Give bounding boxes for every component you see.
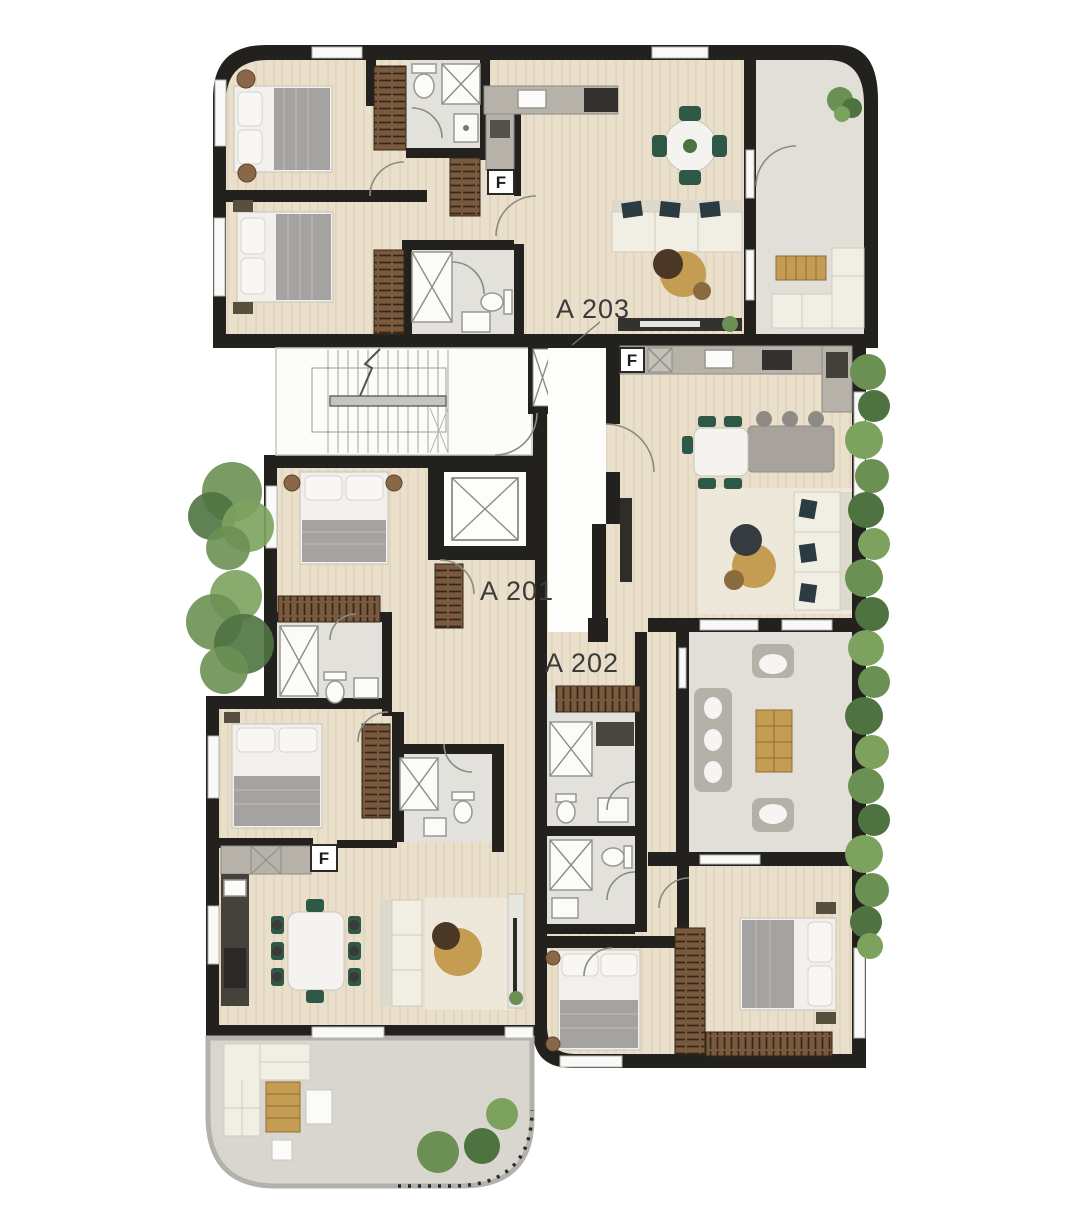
outdoor-chair bbox=[306, 1090, 332, 1124]
wall bbox=[547, 936, 677, 948]
hedge-shrub bbox=[855, 873, 889, 907]
wall bbox=[337, 840, 397, 848]
bar-stool bbox=[808, 411, 824, 427]
pillow bbox=[562, 954, 598, 976]
tv bbox=[640, 321, 700, 327]
a201-bedroom2-bed bbox=[224, 712, 322, 828]
pillow bbox=[237, 728, 275, 752]
dining-chair bbox=[679, 170, 701, 185]
window bbox=[679, 648, 686, 688]
nightstand bbox=[284, 475, 300, 491]
nightstand bbox=[233, 200, 253, 212]
chair-seat bbox=[272, 920, 282, 930]
fridge-marker-a203: F bbox=[496, 173, 506, 192]
kitchen-island bbox=[748, 426, 834, 472]
wardrobe bbox=[362, 724, 390, 818]
hedge-shrub bbox=[848, 492, 884, 528]
window bbox=[214, 218, 225, 296]
sofa bbox=[392, 900, 422, 1006]
wardrobe bbox=[450, 158, 480, 216]
tv-console bbox=[620, 498, 632, 582]
sink bbox=[552, 898, 578, 918]
wall bbox=[514, 110, 521, 196]
hedge-shrub bbox=[848, 630, 884, 666]
void-wall-lower bbox=[592, 524, 606, 634]
tv bbox=[513, 918, 517, 992]
sofa-pillow bbox=[704, 697, 722, 719]
void-wall-nub bbox=[588, 618, 608, 642]
pillow bbox=[305, 476, 342, 500]
wall bbox=[492, 744, 504, 852]
outdoor-bench bbox=[776, 256, 826, 280]
cooktop bbox=[762, 350, 792, 370]
pillow bbox=[601, 954, 637, 976]
chair-seat bbox=[349, 946, 359, 956]
a203-bedroom1-bed bbox=[234, 70, 332, 182]
sliding-door bbox=[782, 620, 832, 630]
void-wall-mid bbox=[606, 472, 620, 524]
toilet-tank bbox=[504, 290, 512, 314]
hedge-shrub bbox=[845, 697, 883, 735]
dining-chair bbox=[724, 416, 742, 427]
hedge-shrub bbox=[848, 768, 884, 804]
pillow bbox=[346, 476, 383, 500]
bath-counter bbox=[596, 722, 634, 746]
wardrobe bbox=[706, 1032, 832, 1056]
hedge-shrub bbox=[858, 390, 890, 422]
sliding-door bbox=[700, 855, 760, 864]
dining-chair bbox=[682, 436, 693, 454]
hedge-shrub bbox=[858, 804, 890, 836]
apartment-a201-label: A 201 bbox=[480, 576, 554, 606]
nightstand bbox=[233, 302, 253, 314]
toilet bbox=[557, 801, 575, 823]
sofa-pillow bbox=[799, 543, 817, 563]
floor-plan-svg: F F F bbox=[0, 0, 1077, 1229]
armchair-cushion bbox=[759, 804, 787, 824]
hedge-shrub bbox=[845, 421, 883, 459]
hedge-shrub bbox=[845, 559, 883, 597]
nightstand bbox=[546, 1037, 560, 1051]
window bbox=[208, 736, 219, 798]
pillow bbox=[238, 92, 262, 126]
nightstand bbox=[238, 164, 256, 182]
stair-handrail bbox=[330, 396, 446, 406]
floor-plan-page: F F F bbox=[0, 0, 1077, 1229]
blanket bbox=[276, 214, 331, 300]
nightstand bbox=[816, 1012, 836, 1024]
sliding-door bbox=[700, 620, 758, 630]
blanket bbox=[742, 920, 794, 1008]
sofa-pillow bbox=[704, 761, 722, 783]
coffee-table bbox=[730, 524, 762, 556]
window bbox=[746, 250, 754, 300]
toilet bbox=[481, 293, 503, 311]
coffee-table bbox=[693, 282, 711, 300]
fridge-marker-a202: F bbox=[627, 351, 637, 370]
dining-chair bbox=[698, 416, 716, 427]
sink bbox=[354, 678, 378, 698]
tree-icon bbox=[188, 462, 274, 570]
sofa-pillow bbox=[799, 583, 817, 603]
outdoor-sofa bbox=[832, 248, 864, 328]
blanket bbox=[560, 1000, 638, 1048]
armchair-cushion bbox=[759, 654, 787, 674]
hedge-shrub bbox=[850, 906, 882, 938]
hedge-shrub bbox=[857, 933, 883, 959]
hedge-shrub bbox=[858, 666, 890, 698]
sink bbox=[424, 818, 446, 836]
wall bbox=[264, 698, 384, 709]
toilet-tank bbox=[324, 672, 346, 680]
wall bbox=[428, 468, 440, 560]
wall bbox=[406, 148, 490, 158]
plant-icon bbox=[722, 316, 738, 332]
wardrobe bbox=[374, 250, 404, 334]
a202-bedroom2-bed bbox=[740, 902, 836, 1024]
window bbox=[652, 47, 708, 58]
nightstand bbox=[816, 902, 836, 914]
window bbox=[854, 948, 865, 1038]
bush-icon bbox=[464, 1128, 500, 1164]
pillow bbox=[238, 130, 262, 164]
dining-chair bbox=[712, 135, 727, 157]
pillow bbox=[241, 218, 265, 254]
a202-entry-opening bbox=[606, 424, 620, 472]
toilet bbox=[414, 74, 434, 98]
dining-chair bbox=[724, 478, 742, 489]
toilet-tank bbox=[452, 792, 474, 800]
a201-bedroom1-bed bbox=[284, 472, 402, 564]
fridge-marker-a201: F bbox=[319, 849, 329, 868]
wardrobe bbox=[374, 66, 406, 150]
sofa-pillow bbox=[699, 201, 720, 218]
dining-chair bbox=[698, 478, 716, 489]
hedge-shrub bbox=[858, 528, 890, 560]
sink bbox=[598, 798, 628, 822]
wardrobe bbox=[278, 596, 380, 622]
sofa-pillow bbox=[621, 201, 643, 219]
bar-stool bbox=[782, 411, 798, 427]
hedge-shrub bbox=[855, 735, 889, 769]
window bbox=[312, 1027, 384, 1038]
nightstand bbox=[237, 70, 255, 88]
hedge-shrub bbox=[845, 835, 883, 873]
hedge-shrub bbox=[850, 354, 886, 390]
pillow bbox=[279, 728, 317, 752]
wardrobe bbox=[675, 928, 705, 1054]
bush-icon bbox=[417, 1131, 459, 1173]
bar-stool bbox=[756, 411, 772, 427]
dining-chair bbox=[652, 135, 667, 157]
toilet-tank bbox=[412, 64, 436, 73]
dining-chair bbox=[306, 899, 324, 912]
chair-seat bbox=[349, 920, 359, 930]
sofa-pillow bbox=[704, 729, 722, 751]
chair-seat bbox=[272, 946, 282, 956]
dining-table bbox=[288, 912, 344, 990]
wall bbox=[635, 632, 647, 932]
window bbox=[746, 150, 754, 198]
plant-icon bbox=[509, 991, 523, 1005]
coffee-table bbox=[653, 249, 683, 279]
right-hedge bbox=[845, 354, 890, 959]
toilet bbox=[454, 801, 472, 823]
dining-chair bbox=[306, 990, 324, 1003]
sofa-pillow bbox=[799, 499, 818, 520]
bush-icon bbox=[486, 1098, 518, 1130]
wall bbox=[402, 240, 514, 250]
kitchen-sink bbox=[518, 90, 546, 108]
sofa bbox=[612, 212, 742, 252]
wall bbox=[547, 924, 635, 934]
left-trees bbox=[186, 462, 274, 694]
terrace-door-opening bbox=[505, 1027, 533, 1038]
window bbox=[215, 80, 226, 146]
apartment-a202-label: A 202 bbox=[545, 648, 619, 678]
coffee-table bbox=[724, 570, 744, 590]
a203-bedroom2-bed bbox=[233, 200, 333, 314]
sink-drain bbox=[463, 125, 469, 131]
dining-table bbox=[694, 428, 748, 476]
blanket bbox=[234, 776, 320, 826]
oven bbox=[224, 948, 246, 988]
wardrobe bbox=[556, 686, 640, 712]
oven bbox=[826, 352, 848, 378]
pillow bbox=[241, 258, 265, 294]
chair-seat bbox=[272, 972, 282, 982]
dining-chair bbox=[679, 106, 701, 121]
pillow bbox=[808, 922, 832, 962]
kitchen-sink bbox=[224, 880, 246, 896]
wardrobe bbox=[435, 564, 463, 628]
chair-seat bbox=[349, 972, 359, 982]
sofa-back bbox=[380, 900, 392, 1006]
apartment-a203-label: A 203 bbox=[556, 294, 630, 324]
window bbox=[312, 47, 362, 58]
wall bbox=[677, 866, 689, 930]
wall bbox=[547, 826, 635, 836]
nightstand bbox=[546, 951, 560, 965]
outdoor-table bbox=[266, 1082, 300, 1132]
hedge-shrub bbox=[855, 459, 889, 493]
toilet-tank bbox=[624, 846, 632, 868]
oven bbox=[490, 120, 510, 138]
sofa-pillow bbox=[659, 201, 680, 218]
window bbox=[560, 1056, 622, 1067]
sink bbox=[462, 312, 490, 332]
tree-icon bbox=[186, 570, 274, 694]
coffee-table bbox=[432, 922, 460, 950]
kitchen-sink bbox=[705, 350, 733, 368]
hedge-shrub bbox=[855, 597, 889, 631]
pillow bbox=[808, 966, 832, 1006]
window bbox=[208, 906, 219, 964]
cooktop bbox=[584, 88, 618, 112]
toilet bbox=[602, 848, 624, 866]
plant-icon bbox=[683, 139, 697, 153]
wall bbox=[514, 244, 524, 334]
a202-bedroom1-bed bbox=[546, 950, 640, 1051]
a201-living-dining bbox=[271, 894, 524, 1010]
toilet bbox=[326, 681, 344, 703]
nightstand bbox=[224, 712, 240, 723]
nightstand bbox=[386, 475, 402, 491]
void-wall-upper bbox=[606, 348, 620, 426]
blanket bbox=[302, 520, 386, 562]
blanket bbox=[274, 88, 330, 170]
outdoor-stool bbox=[272, 1140, 292, 1160]
